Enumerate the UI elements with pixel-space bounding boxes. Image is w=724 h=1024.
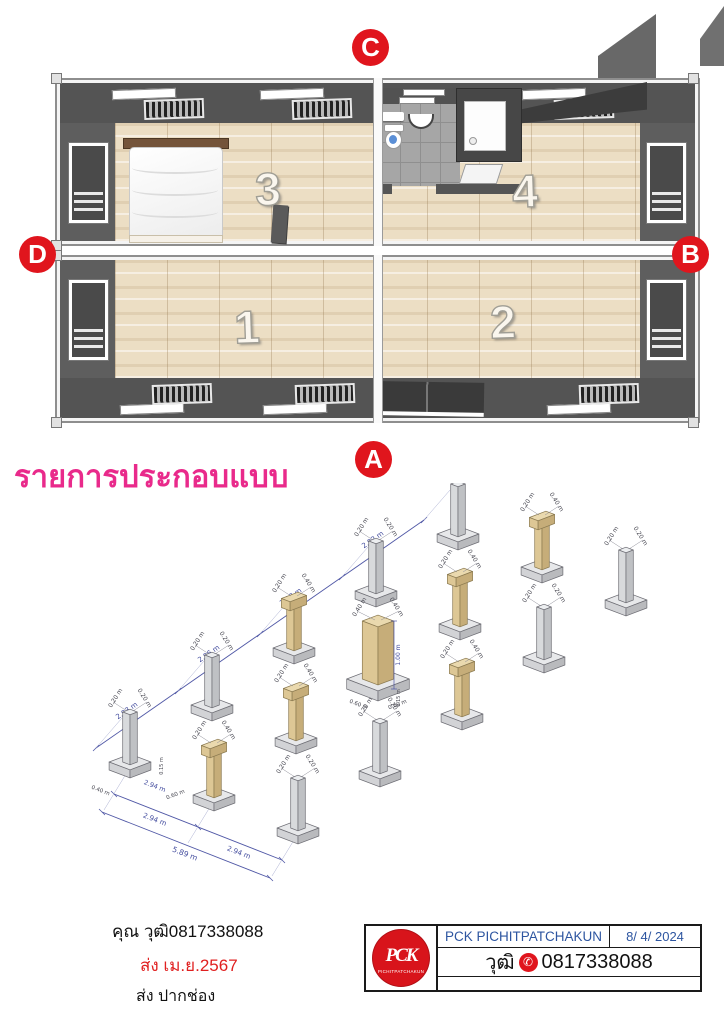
dimension-label: 0.20 m: [271, 572, 288, 594]
window-icon: [647, 280, 686, 360]
marker-C: C: [352, 29, 389, 66]
dimension-label: 5.89 m: [171, 845, 199, 863]
logo-text: PCK: [386, 947, 417, 965]
dimension-label: 0.20 m: [632, 525, 649, 547]
dimension-label: 0.40 m: [388, 596, 405, 618]
bathroom: [378, 88, 520, 194]
marker-D: D: [19, 236, 56, 273]
foundation-shape: [458, 484, 465, 537]
wall-right: [640, 260, 695, 378]
foundation-shape: [362, 621, 378, 685]
shower-enclosure: [456, 88, 522, 162]
room-number-4: 4: [511, 164, 538, 219]
dimension-label: 0.20 m: [304, 753, 321, 775]
window-icon: [69, 280, 108, 360]
doormat-icon: [378, 381, 485, 417]
foundation-shape: [188, 807, 210, 843]
dimension-label: 0.20 m: [437, 548, 454, 570]
bed-fold: [132, 184, 218, 196]
room-number-1: 1: [233, 300, 260, 355]
dimension-label: 1.00 m: [395, 644, 402, 665]
title-block: PCK PICHITPATCHAKUN PCK PICHITPATCHAKUN …: [364, 924, 702, 992]
roof-panel-icon: [598, 14, 656, 84]
container-unit-top: 3 4: [55, 78, 700, 246]
bath-mat: [459, 164, 503, 184]
wall-left: [60, 260, 115, 378]
foundation-shape: [453, 582, 460, 627]
foundation-shape: [380, 721, 387, 774]
foundation-shape: [424, 490, 450, 520]
ceiling-vent-icon: [112, 89, 204, 119]
foundation-shape: [212, 655, 219, 708]
bathroom-top-wall: [378, 88, 458, 104]
page-title: รายการประกอบแบบ: [14, 451, 288, 501]
dimension-label: 0.15 m: [159, 757, 165, 775]
foundation-shape: [296, 696, 303, 741]
sink-icon: [382, 112, 404, 121]
foundation-shape: [287, 606, 294, 651]
floor-plan: 3 4: [55, 78, 700, 423]
module-divider: [373, 255, 383, 423]
dimension-label: 0.20 m: [519, 491, 536, 513]
dimension-label: 0.20 m: [603, 525, 620, 547]
dimension-label: 0.20 m: [521, 582, 538, 604]
contact-person: วุฒิ: [485, 946, 514, 978]
foundation-shape: [373, 721, 380, 774]
foundation-shape: [451, 484, 458, 537]
title-block-row1: PCK PICHITPATCHAKUN 8/ 4/ 2024: [438, 926, 700, 948]
toilet-icon: [384, 124, 402, 148]
bathroom-shelf: [403, 89, 445, 96]
roof-panel-small-icon: [700, 6, 724, 66]
ceiling-vent-icon: [260, 89, 352, 119]
room-number-2: 2: [489, 295, 516, 350]
customer-name: คุณ วุฒิ0817338088: [112, 918, 362, 945]
floor-vent-icon: [263, 384, 355, 414]
toilet-bowl: [385, 131, 402, 149]
dimension-label: 0.40 m: [548, 491, 565, 513]
dimension-label: 0.20 m: [353, 516, 370, 538]
foundation-shape: [535, 525, 542, 570]
foundation-shape: [272, 840, 294, 876]
foundation-shape: [619, 550, 626, 603]
dimension-label: 0.40 m: [351, 596, 368, 618]
contact-block: คุณ วุฒิ0817338088 ส่ง เม.ย.2567 ส่ง ปาก…: [112, 918, 362, 1009]
dimension-label: 0.40 m: [90, 785, 110, 798]
dimension-label: 0.40 m: [220, 719, 237, 741]
room-number-3: 3: [254, 162, 281, 217]
foundation-shape: [294, 606, 301, 651]
bed-fold: [132, 206, 218, 218]
logo-cell: PCK PICHITPATCHAKUN: [366, 926, 438, 990]
foundation-shape: [214, 753, 221, 798]
phone-number: 0817338088: [542, 951, 653, 974]
foundation-shape: [123, 712, 130, 765]
floor-vent-icon: [120, 384, 212, 414]
foundation-shape: [626, 550, 633, 603]
dimension-label: 0.40 m: [300, 572, 317, 594]
foundation-shape: [542, 525, 549, 570]
foundation-shape: [207, 753, 214, 798]
foundation-shape: [130, 712, 137, 765]
foundation-shape: [376, 541, 383, 594]
module-divider: [373, 78, 383, 246]
logo-caption: PICHITPATCHAKUN: [378, 969, 424, 974]
foundation-shape: [462, 672, 469, 717]
title-block-row3: [438, 977, 700, 990]
delivery-date: ส่ง เม.ย.2567: [112, 952, 362, 979]
floor-vent-icon: [547, 384, 639, 414]
foundation-drawing: 2.93 m2.96 m2.98 m2.92 m2.94 m2.94 m5.89…: [0, 483, 724, 933]
marker-B: B: [672, 236, 709, 273]
bathroom-bottom-wall: [378, 184, 520, 194]
delivery-place: ส่ง ปากช่อง: [112, 984, 362, 1009]
title-block-row2: วุฒิ ✆ 0817338088: [438, 948, 700, 977]
dimension-label: 0.20 m: [439, 638, 456, 660]
bed-foot: [129, 235, 223, 243]
foundation-shape: [205, 655, 212, 708]
dimension-label: 0.20 m: [275, 753, 292, 775]
bathroom-shelf: [399, 97, 435, 104]
dimension-label: 0.20 m: [189, 630, 206, 652]
foundation-shape: [544, 607, 551, 660]
container-unit-bottom: 1 2: [55, 255, 700, 423]
dimension-label: 0.60 m: [166, 789, 186, 802]
foundation-shape: [291, 778, 298, 831]
window-icon: [69, 143, 108, 223]
foundation-shape: [378, 621, 394, 685]
title-block-fields: PCK PICHITPATCHAKUN 8/ 4/ 2024 วุฒิ ✆ 08…: [438, 926, 700, 990]
bed: [126, 138, 224, 243]
dimension-label: 0.20 m: [191, 719, 208, 741]
wall-right: [640, 123, 695, 241]
dimension-label: 2.94 m: [143, 778, 167, 794]
window-icon: [647, 143, 686, 223]
drawing-date: 8/ 4/ 2024: [610, 926, 700, 947]
foundation-shape: [369, 541, 376, 594]
company-name: PCK PICHITPATCHAKUN: [438, 926, 610, 947]
phone-icon: ✆: [519, 953, 538, 972]
dimension-label: 0.20 m: [273, 662, 290, 684]
bed-fold: [132, 162, 218, 174]
wall-left: [60, 123, 115, 241]
marker-A: A: [355, 441, 392, 478]
foundation-shape: [289, 696, 296, 741]
pck-logo: PCK PICHITPATCHAKUN: [373, 930, 429, 986]
dimension-label: 0.20 m: [550, 582, 567, 604]
foundation-shape: [298, 778, 305, 831]
dimension-label: 0.40 m: [468, 638, 485, 660]
foundation-shape: [455, 672, 462, 717]
foundation-shape: [460, 582, 467, 627]
dimension-label: 0.20 m: [107, 687, 124, 709]
shower-tray: [464, 101, 506, 151]
dimension-label: 0.40 m: [466, 548, 483, 570]
dimension-label: 0.40 m: [302, 662, 319, 684]
foundation-shape: [537, 607, 544, 660]
